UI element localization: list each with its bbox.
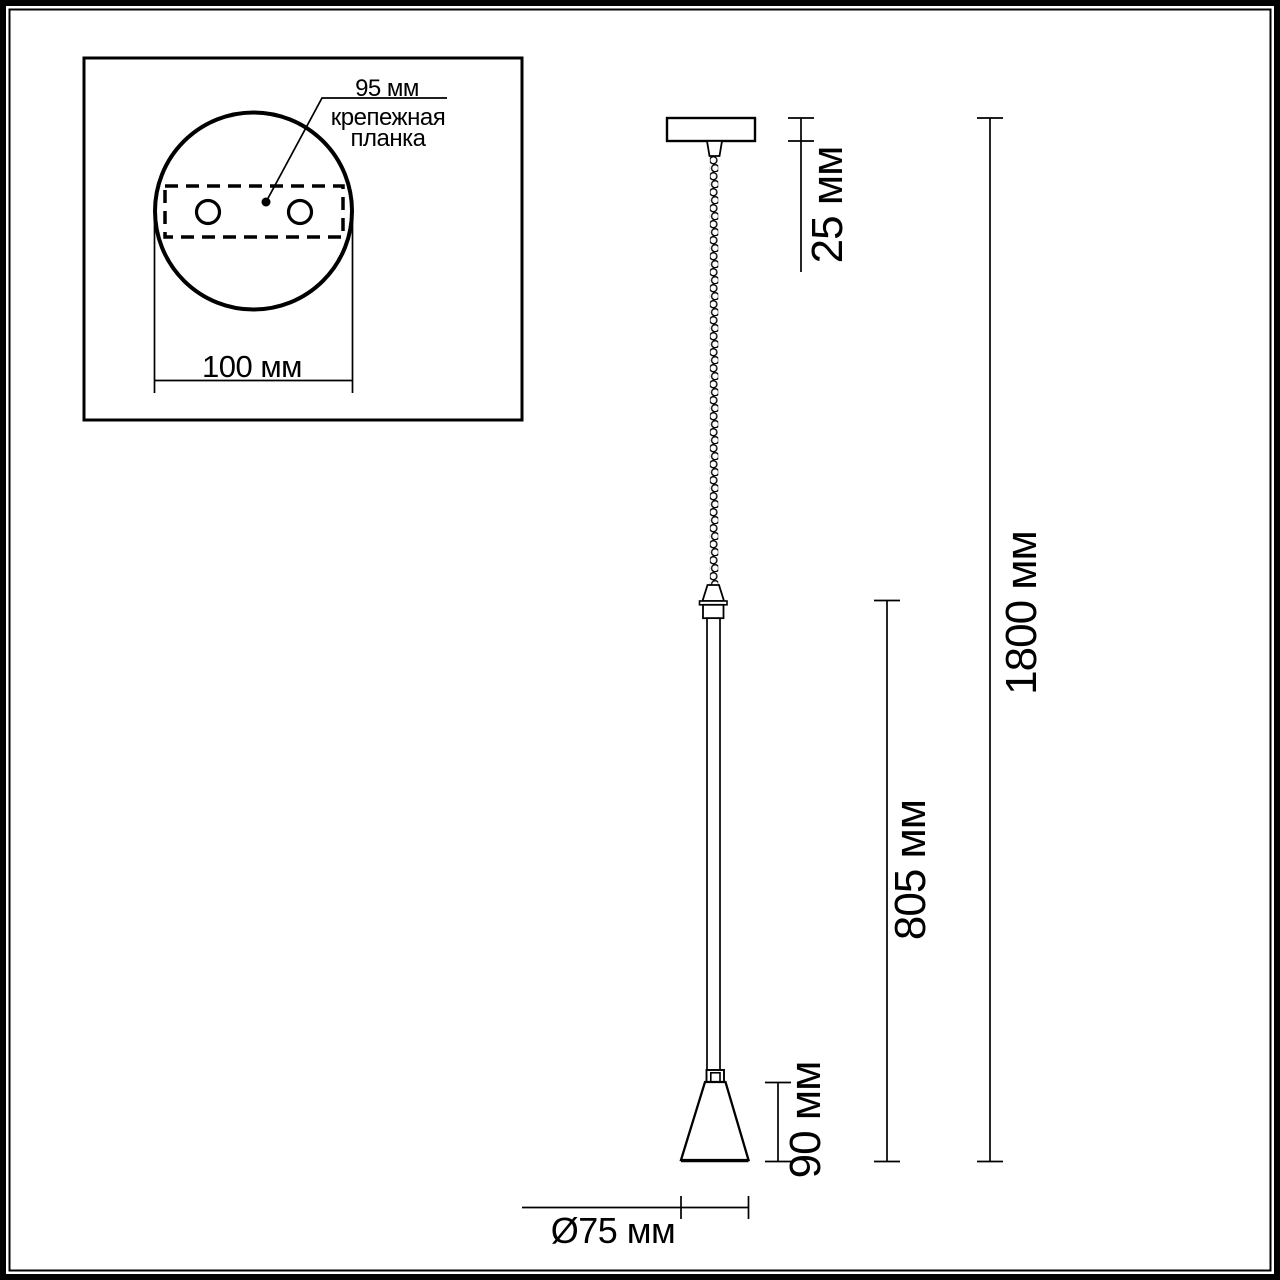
suspension-length-dimension: 805 мм	[874, 601, 935, 1162]
cone-shade	[681, 1082, 749, 1160]
pendant-side-view	[667, 118, 755, 1161]
canopy-diameter-dimension: 100 мм	[155, 214, 353, 393]
canopy-height-dimension: 25 мм	[788, 118, 852, 272]
mounting-plate-dashed-outline	[165, 186, 343, 237]
hole-spacing-label: 95 мм	[355, 75, 419, 102]
overall-height-dimension: 1800 мм	[977, 118, 1046, 1162]
mounting-plate-caption-line2: планка	[351, 125, 427, 152]
canopy-diameter-label: 100 мм	[202, 349, 302, 384]
shade-diameter-label: Ø75 мм	[551, 1210, 676, 1251]
mounting-hole-left	[197, 201, 220, 224]
mounting-hole-right	[289, 201, 312, 224]
cable-gland	[707, 141, 722, 156]
canopy-height-label: 25 мм	[803, 147, 852, 264]
shade-diameter-dimension: Ø75 мм	[522, 1196, 749, 1251]
cable-coupler-cone	[703, 585, 725, 601]
cable-coupler-body	[703, 605, 724, 618]
canopy-top-view-circle	[155, 113, 352, 310]
stem-rod	[707, 618, 720, 1070]
ceiling-canopy	[667, 118, 755, 141]
suspension-cable	[710, 156, 719, 585]
shade-height-dimension: 90 мм	[765, 1062, 830, 1179]
mounting-detail-inset: 95 мм крепежная планка 100 мм	[84, 58, 522, 420]
technical-drawing-page: 95 мм крепежная планка 100 мм 25 мм	[0, 0, 1280, 1280]
frame-inner-border	[10, 10, 1271, 1271]
pendant-dimension-drawing: 95 мм крепежная планка 100 мм 25 мм	[0, 0, 1280, 1280]
inset-box	[84, 58, 522, 420]
shade-height-label: 90 мм	[781, 1062, 830, 1179]
frame-outer-border	[3, 3, 1277, 1277]
suspension-length-label: 805 мм	[886, 800, 935, 940]
shade-holder-inner	[711, 1073, 720, 1082]
overall-height-label: 1800 мм	[997, 531, 1046, 695]
